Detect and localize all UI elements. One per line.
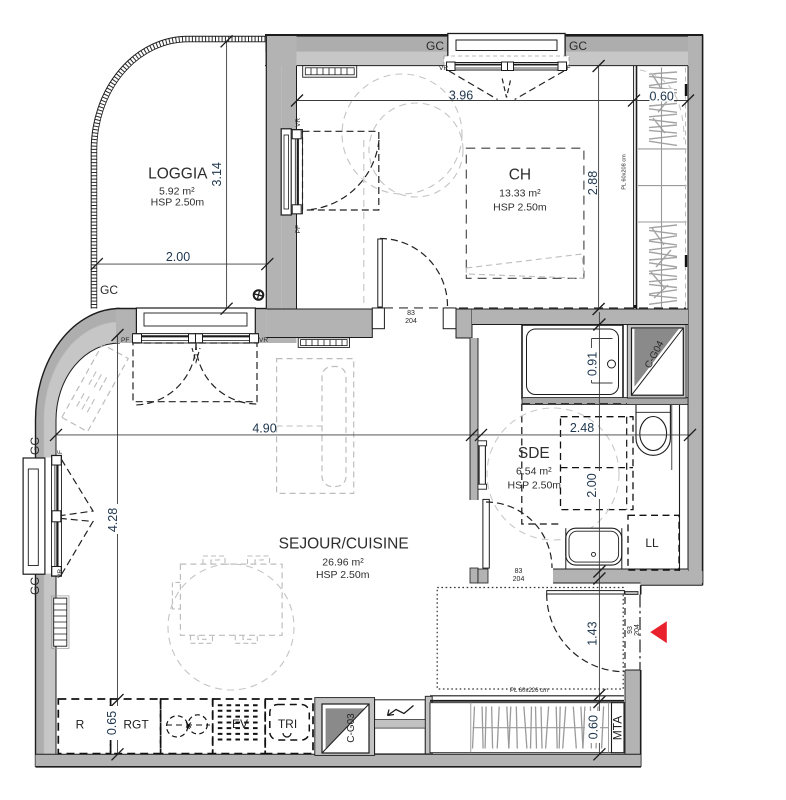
- svg-text:26.96 m²: 26.96 m²: [322, 557, 364, 569]
- svg-text:3.14: 3.14: [210, 162, 224, 186]
- svg-text:4.90: 4.90: [252, 422, 276, 436]
- svg-text:204: 204: [634, 624, 641, 636]
- svg-text:0.60: 0.60: [650, 90, 674, 104]
- svg-text:2.00: 2.00: [166, 250, 190, 264]
- svg-text:93: 93: [627, 626, 634, 634]
- svg-text:GC: GC: [28, 437, 42, 455]
- svg-text:RGT: RGT: [123, 718, 149, 732]
- svg-text:C-G03: C-G03: [346, 713, 357, 743]
- svg-text:VR: VR: [259, 337, 268, 344]
- svg-text:SEJOUR/CUISINE: SEJOUR/CUISINE: [279, 535, 409, 552]
- svg-text:PF: PF: [121, 337, 129, 344]
- svg-text:HSP 2.50m: HSP 2.50m: [151, 196, 205, 208]
- svg-text:HSP 2.50m: HSP 2.50m: [316, 569, 370, 581]
- svg-text:PF: PF: [295, 225, 302, 233]
- svg-text:LL: LL: [645, 536, 659, 550]
- svg-text:4.28: 4.28: [106, 508, 120, 532]
- svg-text:3.96: 3.96: [449, 89, 473, 103]
- svg-text:HSP 2.50m: HSP 2.50m: [493, 202, 547, 214]
- svg-text:2.88: 2.88: [586, 171, 600, 195]
- svg-text:83: 83: [407, 310, 415, 317]
- svg-text:TRI: TRI: [278, 717, 297, 731]
- svg-text:R: R: [76, 718, 85, 732]
- svg-text:PL 60x208 cm: PL 60x208 cm: [622, 154, 628, 190]
- svg-text:VR: VR: [57, 569, 64, 578]
- svg-text:13.33 m²: 13.33 m²: [499, 187, 541, 199]
- svg-text:PL 60x226 cm: PL 60x226 cm: [510, 688, 548, 694]
- svg-text:GC: GC: [100, 283, 118, 297]
- svg-text:204: 204: [513, 576, 525, 583]
- svg-text:2.48: 2.48: [570, 421, 594, 435]
- svg-text:83: 83: [515, 568, 523, 575]
- svg-text:6.54 m²: 6.54 m²: [516, 466, 552, 478]
- svg-text:VR: VR: [439, 65, 448, 72]
- svg-text:204: 204: [405, 318, 417, 325]
- svg-text:VR: VR: [295, 118, 302, 127]
- svg-text:SDE: SDE: [518, 445, 550, 462]
- svg-text:2.00: 2.00: [585, 473, 599, 497]
- svg-text:0.91: 0.91: [586, 352, 600, 376]
- svg-text:EV: EV: [232, 717, 248, 731]
- svg-text:1.43: 1.43: [586, 621, 600, 645]
- svg-text:F: F: [57, 450, 64, 454]
- svg-text:F: F: [567, 65, 571, 72]
- svg-text:GC: GC: [569, 39, 587, 53]
- svg-text:HSP 2.50m: HSP 2.50m: [508, 480, 562, 492]
- svg-text:0.60: 0.60: [587, 715, 601, 739]
- svg-text:GC: GC: [28, 577, 42, 595]
- svg-text:MTA: MTA: [611, 716, 625, 740]
- svg-text:0.65: 0.65: [105, 711, 119, 735]
- svg-text:LOGGIA: LOGGIA: [148, 166, 208, 183]
- svg-text:GC: GC: [426, 39, 444, 53]
- svg-text:CH: CH: [509, 167, 531, 184]
